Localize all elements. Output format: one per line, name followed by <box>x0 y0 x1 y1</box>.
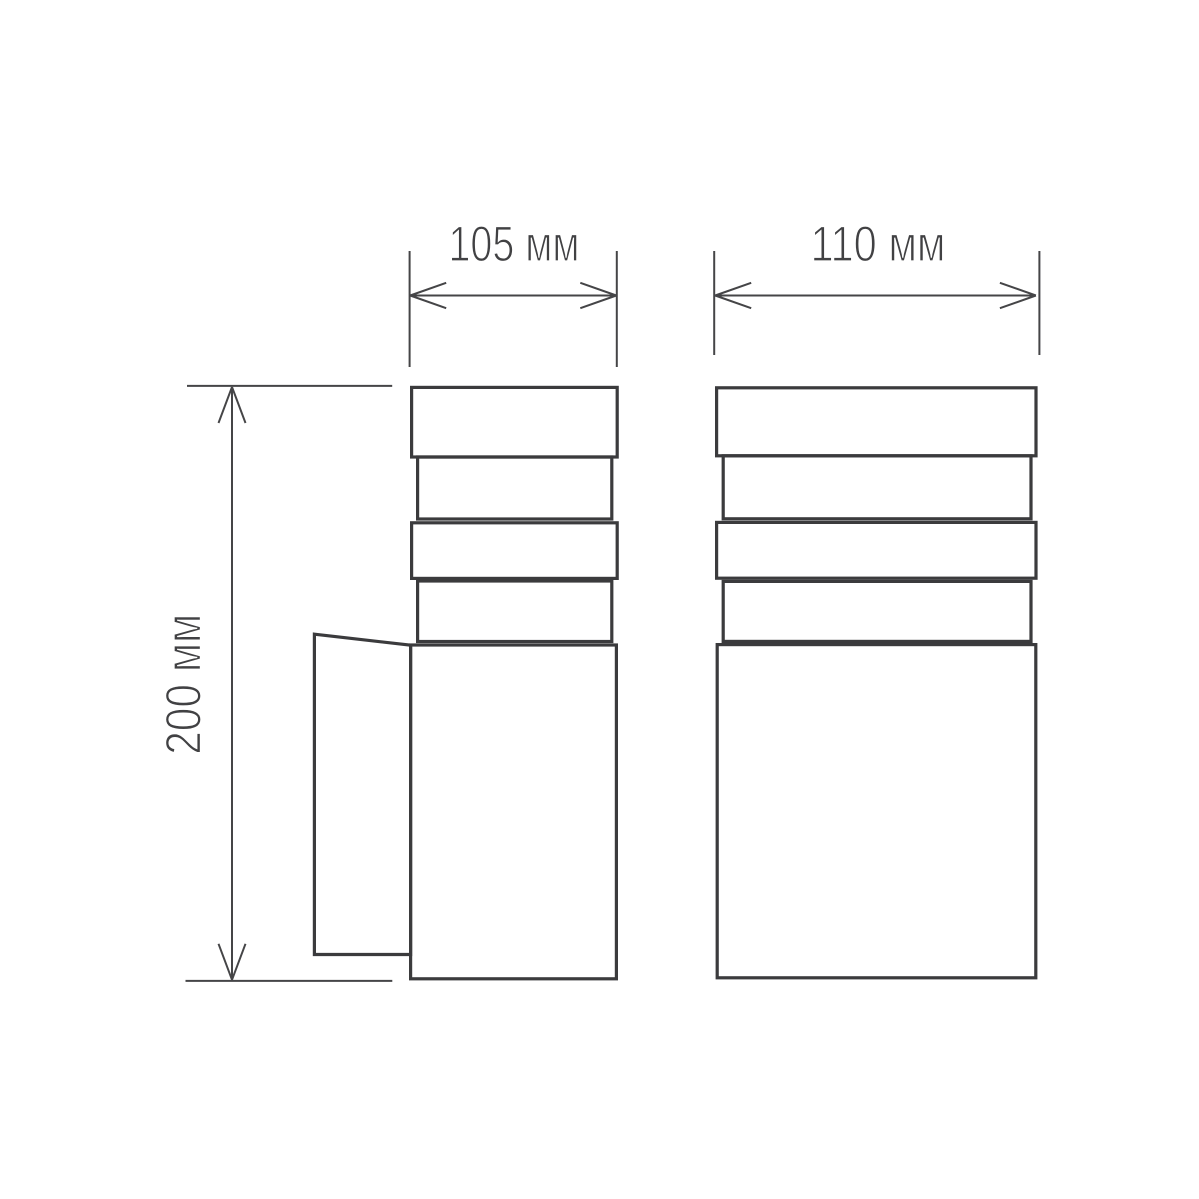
svg-text:105 мм: 105 мм <box>449 216 580 272</box>
svg-text:110 мм: 110 мм <box>811 216 946 272</box>
svg-text:200 мм: 200 мм <box>156 614 212 755</box>
